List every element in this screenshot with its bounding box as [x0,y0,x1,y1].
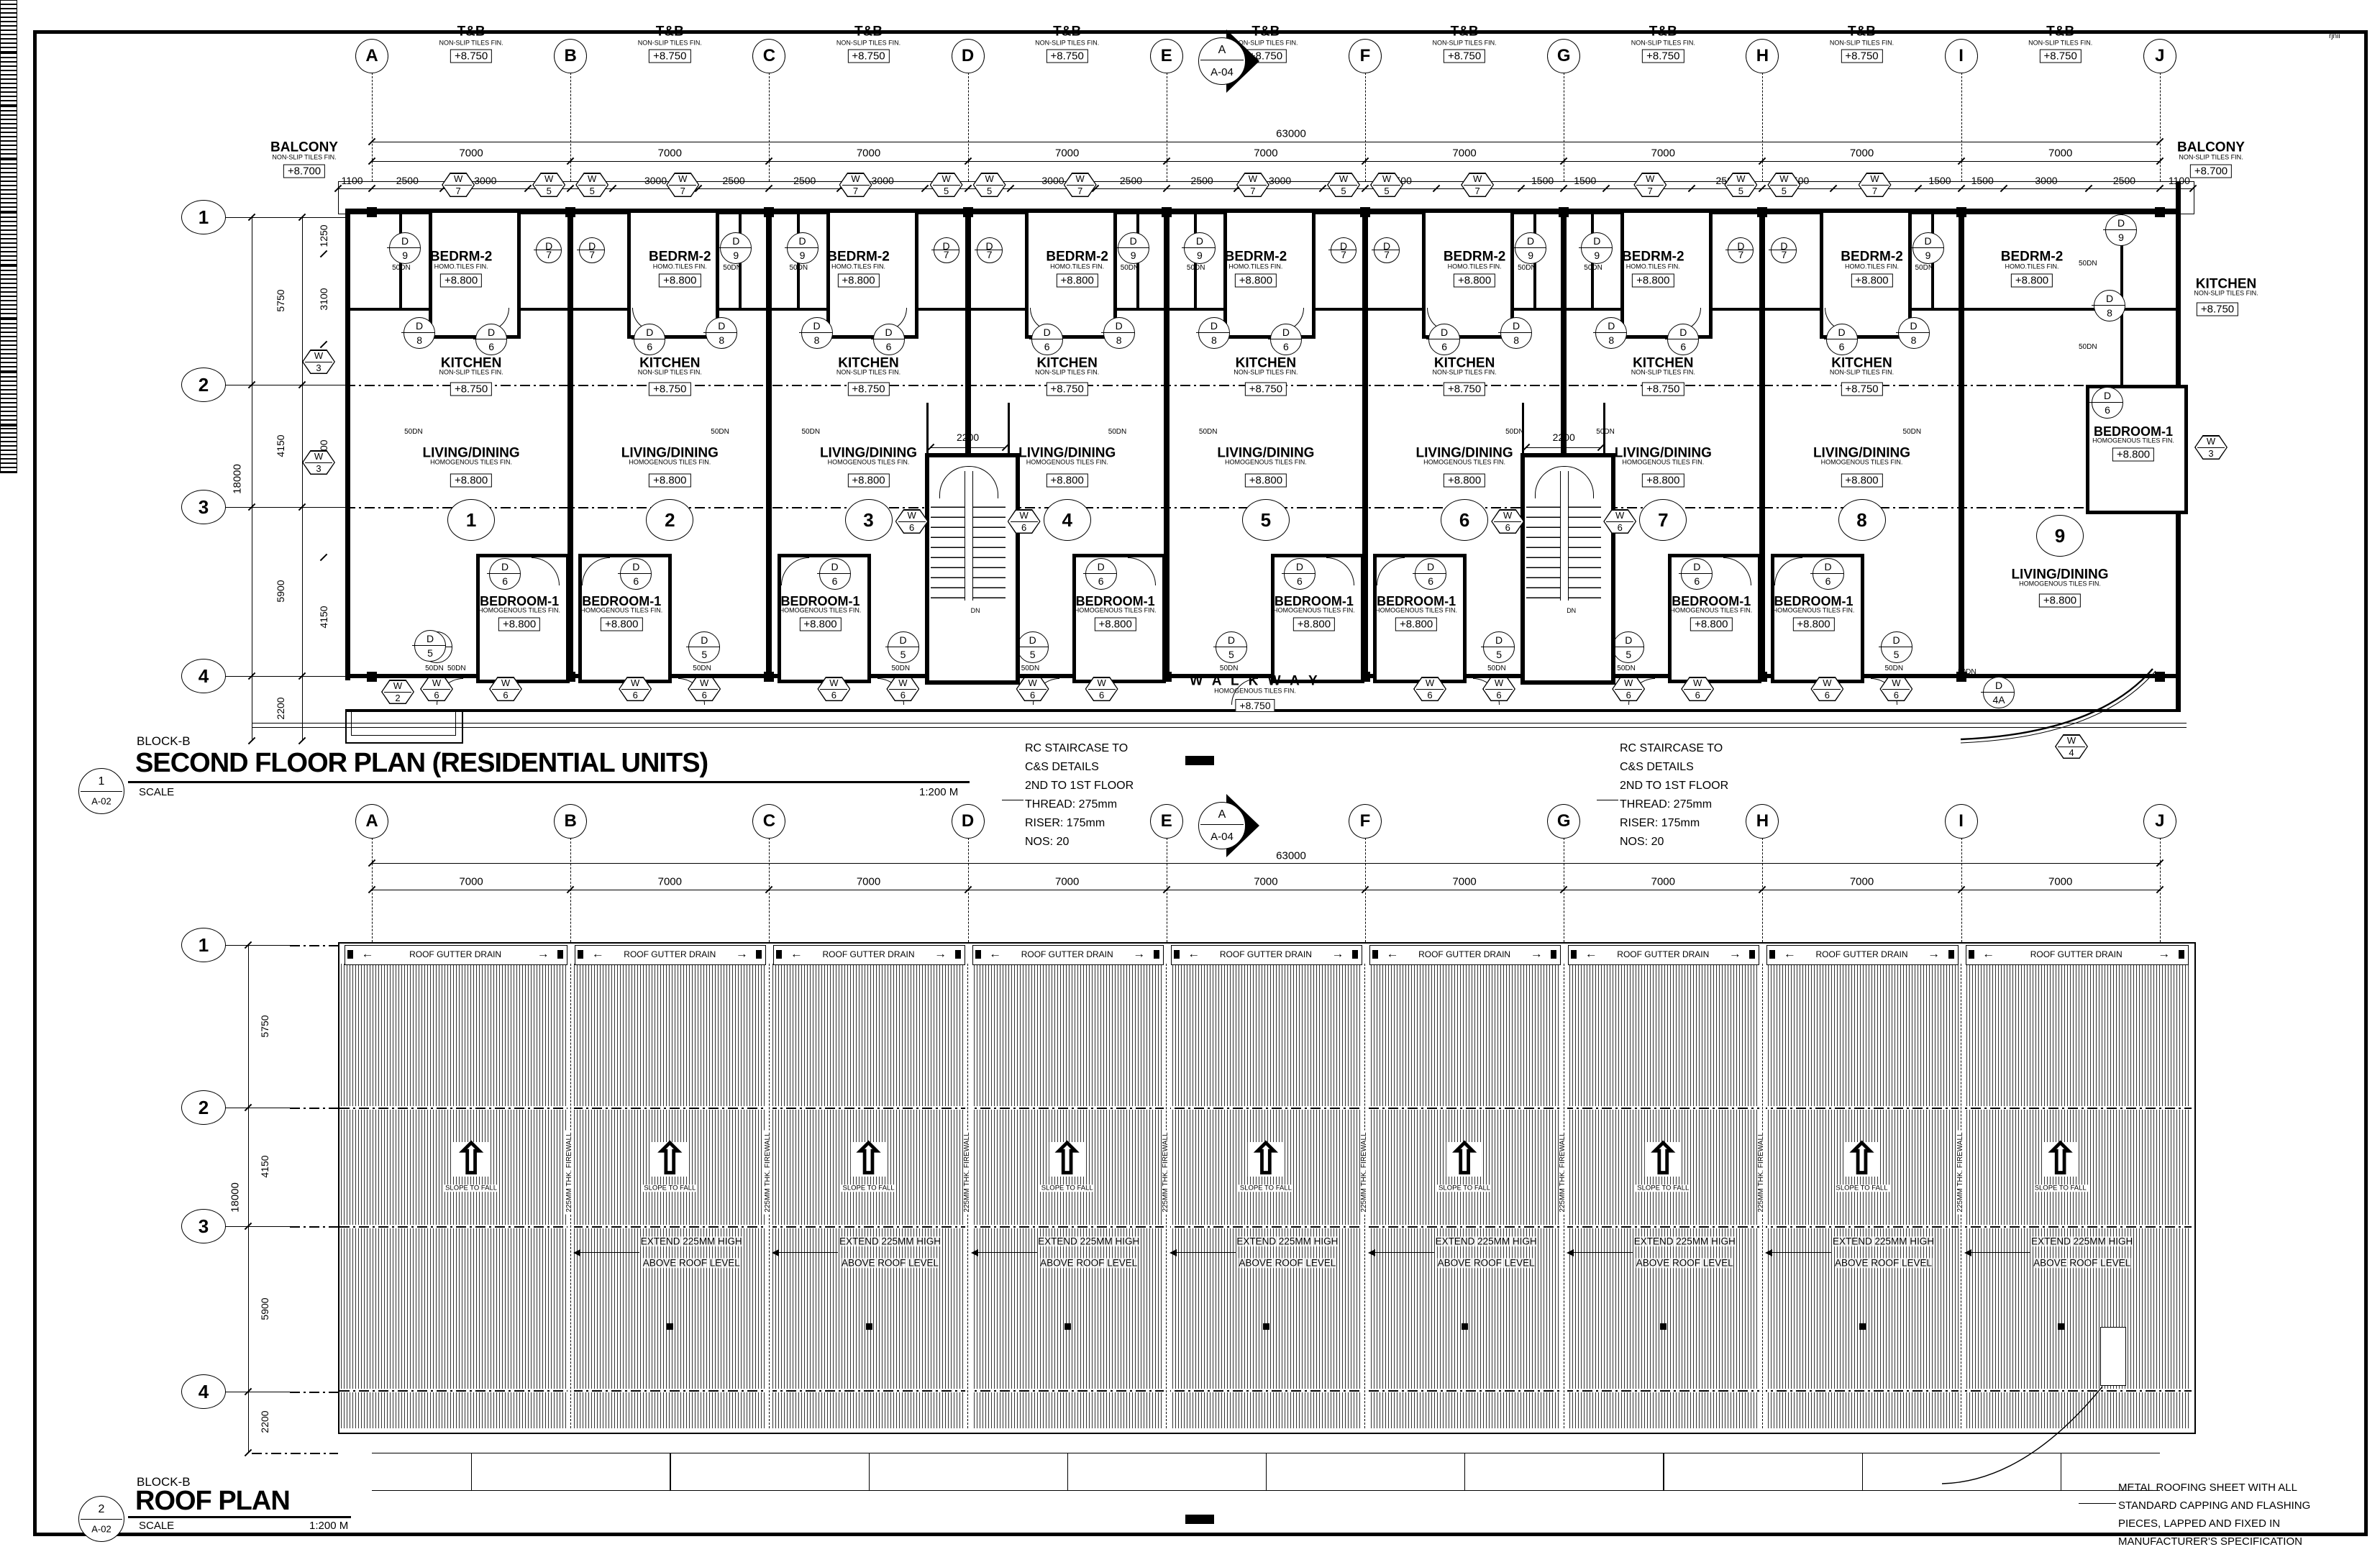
drawing-sheet: rjnii BLOCK-B SECOND FLOOR PLAN (RESIDEN… [0,0,2380,1552]
leader-curves [0,0,2380,1552]
